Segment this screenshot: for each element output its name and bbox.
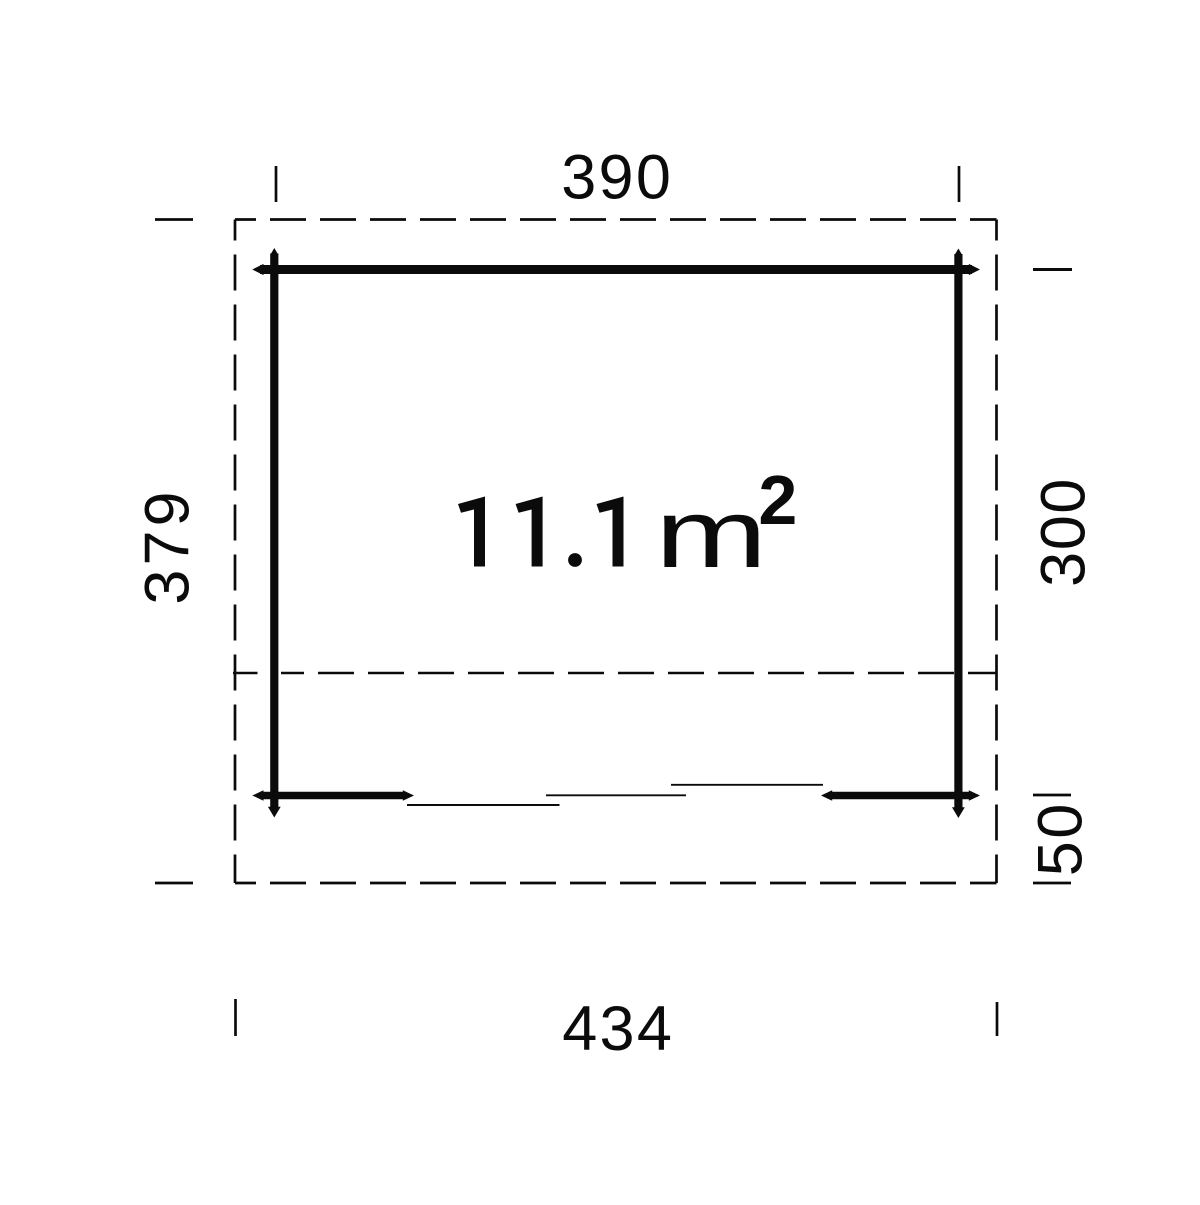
svg-text:m: m [655,479,767,587]
svg-text:50: 50 [1026,801,1096,876]
svg-text:2: 2 [758,461,797,539]
svg-text:390: 390 [561,143,673,213]
svg-text:300: 300 [1029,477,1099,587]
svg-text:434: 434 [562,994,674,1064]
svg-text:379: 379 [132,487,202,604]
